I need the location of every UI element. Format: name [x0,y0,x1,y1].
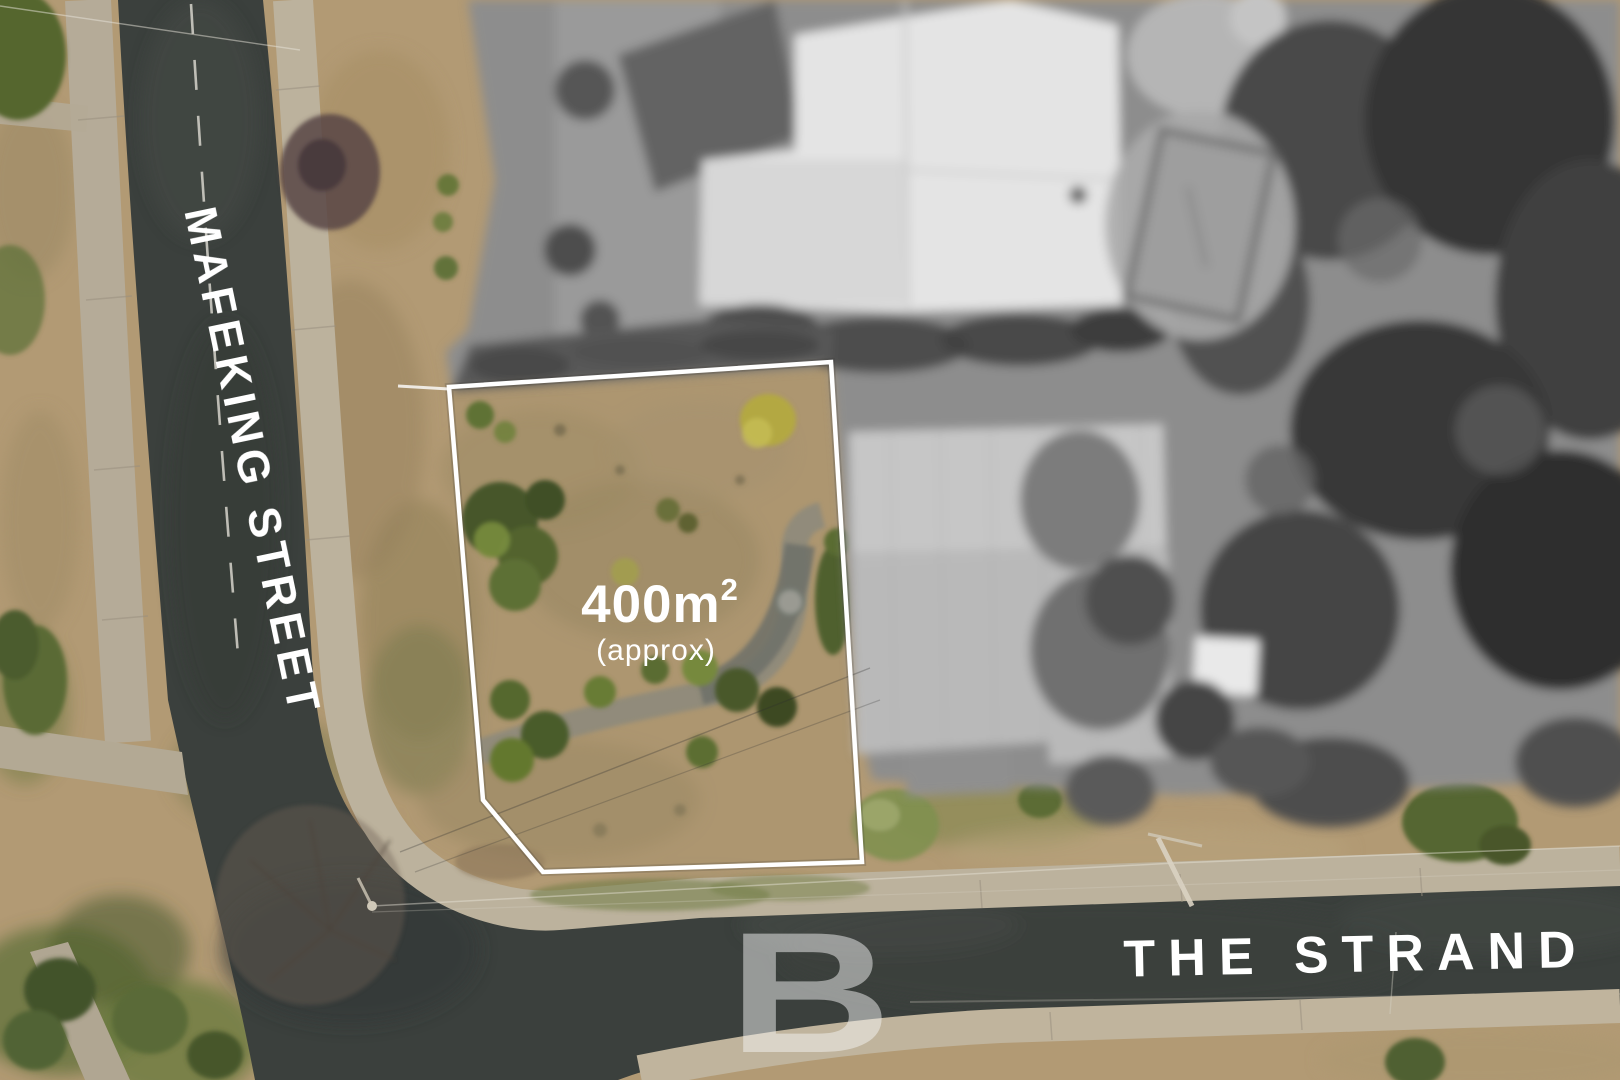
street-label-the-strand: THE STRAND [1123,921,1589,989]
brand-watermark-letter: B [728,897,892,1080]
lot-area-qualifier: (approx) [596,634,716,667]
aerial-photo-stage: B MAFEKING STREET THE STRAND 400m2 (appr… [0,0,1620,1080]
aerial-photograph: B MAFEKING STREET THE STRAND 400m2 (appr… [0,0,1620,1080]
lot-area-value: 400m [581,575,721,634]
lot-area-superscript: 2 [721,572,739,607]
lot-area-label: 400m2 [581,572,739,634]
